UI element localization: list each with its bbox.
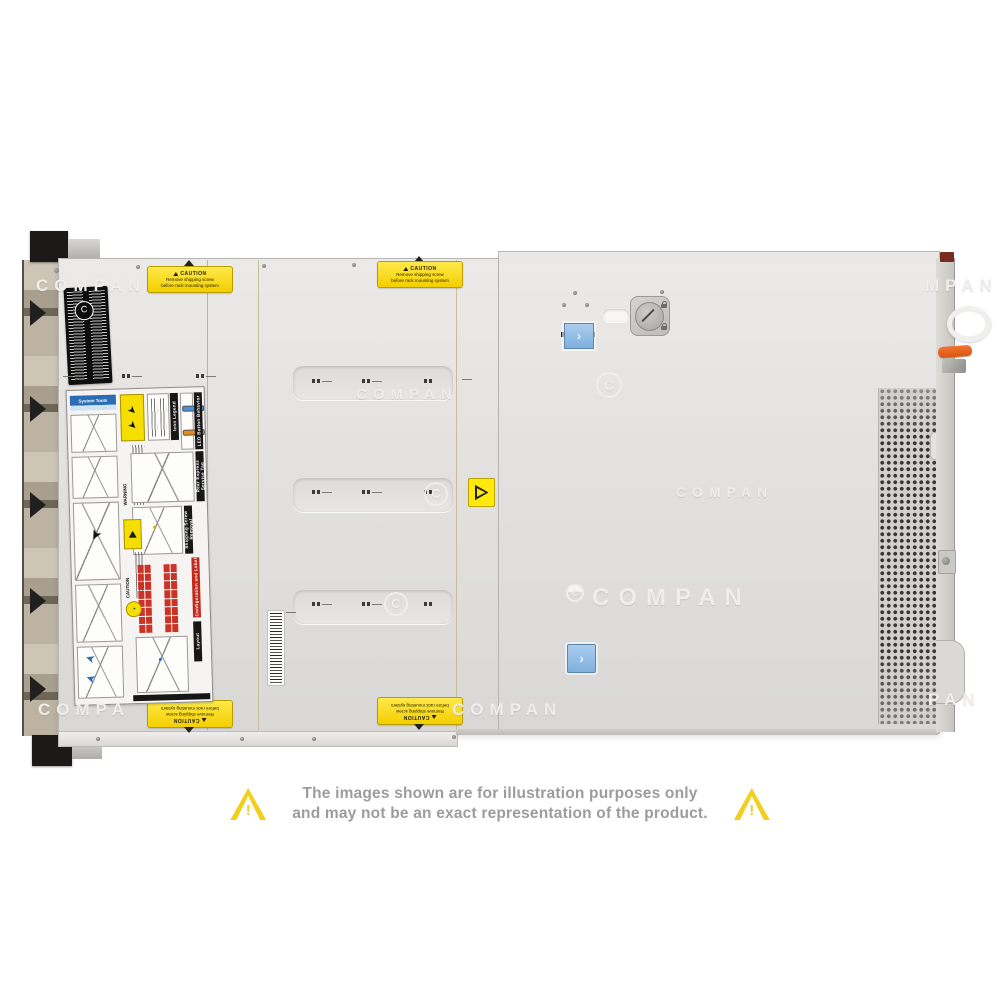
vent-slots [424,602,432,606]
watermark: COMPAN [452,700,562,720]
screw-icon [240,737,244,741]
cover-release-button: › [564,323,594,349]
lid-bottom-trim [456,729,938,735]
disclaimer-line2: and may not be an exact representation o… [292,804,708,824]
vent-slots [196,374,216,378]
diagram-sketch [77,646,124,699]
warning-triangle-icon [432,715,437,719]
watermark-c-icon: C [566,584,584,602]
screw-icon [585,303,589,307]
disclaimer-text: The images shown are for illustration pu… [292,784,708,824]
warning-triangle-icon [129,531,137,538]
lock-dial-disc [635,302,664,331]
arrow-icon: ➤ [126,404,139,417]
vent-slots [312,490,332,494]
lock-closed-icon [661,326,667,330]
caution-vertical-label: CAUTION [124,552,134,598]
vent-slots [362,602,382,606]
microtext [151,398,158,436]
vent-slots [312,602,332,606]
blue-dot-icon: ● [158,656,162,663]
screw-icon [54,268,59,273]
shipping-screw-header: Shipping Screw Removal [184,506,193,554]
watermark: MPAN [925,276,998,296]
dimm-config-grid [138,565,153,633]
caution-line1: Remove shipping screw [396,708,444,714]
caution-line1: Remove shipping screw [166,711,214,717]
vent-slots [63,376,73,377]
watermark: COMPA [38,700,130,720]
release-lever-orange [938,345,973,358]
side-screw [938,550,956,574]
layout-sketch [136,636,190,693]
watermark: COMPAN [676,484,773,500]
lid-seam [258,260,259,730]
watermark-c-icon: C [424,482,448,506]
screw-icon [660,290,664,294]
warning-triangle-icon [173,272,178,276]
caution-line2: before rack mounting system [161,706,219,712]
led-behavior-header: LED Button Behavior [194,392,204,449]
screw-icon [352,263,356,267]
caution-line2: before rack mounting system [391,703,449,709]
watermark: COMPAN [36,276,146,296]
caution-title: CAUTION [173,717,199,723]
pinch-warning-icon [123,519,142,549]
caution-sticker: CAUTION Remove shipping screw before rac… [147,266,233,293]
service-information-label: System Tools ➤ ➤ ➤ ➤ ➤ WARNING [66,386,214,706]
server-front-edge [22,260,63,736]
watermark: COMPAN [592,584,751,612]
diagram-sketch [70,414,117,453]
red-tab [940,252,954,262]
warning-icon-box: ➤ ➤ [120,394,145,442]
thumbscrew-ring [947,306,991,342]
cover-release-button: › [567,644,596,673]
regulatory-microtext [89,290,110,380]
pointer-icon [184,727,194,733]
dimm-config-grid [164,564,179,632]
layout-header: Layout [193,621,202,661]
lid-recess-vent [293,590,453,624]
server-lid-right-top-step [498,251,940,264]
service-tag-header: Rear Express Service Tag [195,451,204,501]
diagram-sketch [71,456,118,499]
hinge-hardware [942,359,966,373]
vent-slots [312,379,332,383]
icon-legend-header: Icon Legend [170,393,179,440]
microtext [160,398,167,436]
caution-sticker: CAUTION Remove shipping screw before rac… [377,261,463,288]
caution-sticker: CAUTION Remove shipping screw before rac… [377,697,463,725]
vent-slots [362,379,382,383]
configuration-header: Configuration and Label [191,557,201,617]
circle-glyph: ◔ [132,606,136,613]
warning-triangle-icon [202,718,207,722]
vent-slots [462,379,472,380]
disclaimer-line1: The images shown are for illustration pu… [292,784,708,804]
icon-legend-box [147,393,170,441]
vent-slots [122,374,142,378]
watermark: PAN [928,690,981,710]
caution-line2: before rack mounting system [391,278,449,284]
warning-triangle-icon [403,267,408,271]
screw-icon [262,264,266,268]
vent-slots [362,490,382,494]
caution-sticker: CAUTION Remove shipping screw before rac… [147,700,233,728]
rear-vent-grille [878,388,937,724]
warning-triangle-icon [475,485,489,501]
lock-open-icon [661,304,667,308]
pointer-icon [414,724,424,730]
screw-dot-icon: ● [152,522,157,531]
watermark: COMPAN [356,386,458,403]
arrow-icon: ➤ [126,419,139,432]
chevron-right-icon: › [577,329,581,343]
caution-title: CAUTION [403,714,429,720]
warning-triangle-icon: ! [734,788,770,820]
seam-warning-sticker [468,478,495,507]
watermark-c-icon: C [384,592,408,616]
caution-line2: before rack mounting system [161,283,219,289]
screw-icon [136,265,140,269]
cover-lock-dial [630,296,670,336]
led-behavior-box [180,392,195,449]
lid-seam [456,260,457,730]
screw-icon [312,737,316,741]
screw-icon [452,735,456,739]
label-footer-bar [133,693,210,701]
warning-triangle-icon: ! [230,788,266,820]
diagram-sketch [75,584,123,643]
screw-icon [562,303,566,307]
vent-slots [424,379,432,383]
product-photo-stage: C CAUTION Remove shipping screw before r… [0,0,1000,1000]
chevron-right-icon: › [579,651,583,666]
disclaimer-banner: ! The images shown are for illustration … [0,784,1000,824]
lid-bottom-trim [58,731,458,747]
regulatory-label: C [63,286,112,385]
system-tools-subheader [70,405,116,411]
vent-slots [286,612,296,613]
service-tag-sketch [130,451,194,503]
barcode-label [267,610,285,686]
lid-seam [498,260,499,730]
watermark-c-icon: C [596,372,622,398]
screw-icon [96,737,100,741]
screw-icon [573,291,577,295]
latch-slot [603,309,629,322]
